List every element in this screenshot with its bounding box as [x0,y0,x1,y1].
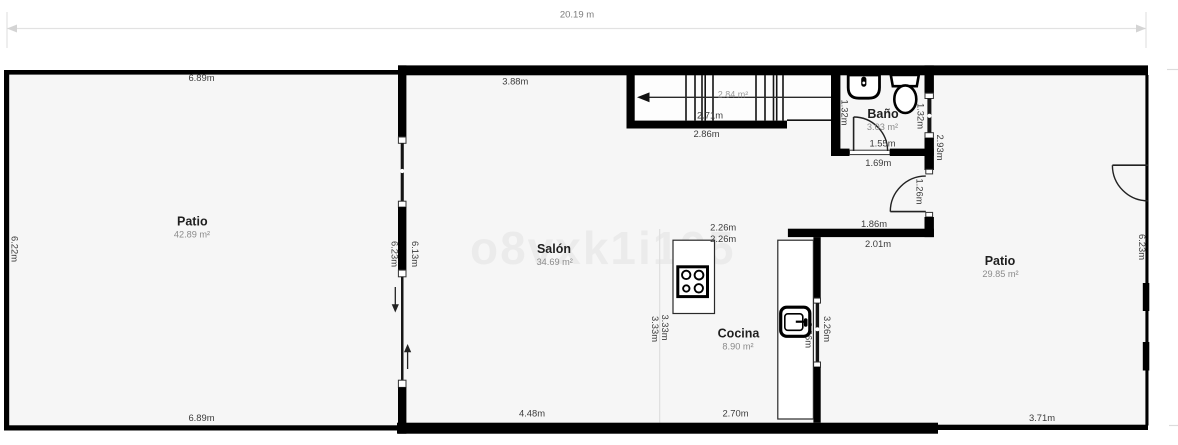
svg-text:6.89m: 6.89m [188,412,214,423]
svg-text:1.32m: 1.32m [840,99,851,125]
svg-text:1.26m: 1.26m [915,178,926,204]
svg-text:34.69 m²: 34.69 m² [537,257,573,267]
svg-text:Baño: Baño [867,107,899,121]
svg-text:2.26m: 2.26m [710,233,736,244]
svg-text:Salón: Salón [537,242,571,256]
svg-text:1.86m: 1.86m [861,218,887,229]
svg-text:1.32m: 1.32m [916,103,927,129]
svg-text:42.89 m²: 42.89 m² [174,230,210,240]
svg-text:3.71m: 3.71m [1029,412,1055,423]
svg-text:29.85 m²: 29.85 m² [982,269,1018,279]
svg-text:6.13m: 6.13m [410,241,421,267]
svg-text:Patio: Patio [177,215,208,229]
svg-text:2.01m: 2.01m [865,238,891,249]
svg-text:2.70m: 2.70m [722,408,748,419]
svg-text:6.22m: 6.22m [10,236,21,262]
svg-text:6.23m: 6.23m [1137,234,1148,260]
svg-text:1.69m: 1.69m [865,157,891,168]
svg-text:3.33m: 3.33m [650,316,661,342]
svg-text:2.71m: 2.71m [697,109,723,120]
svg-text:6.23m: 6.23m [390,241,401,267]
svg-text:4.48m: 4.48m [519,408,545,419]
svg-text:Patio: Patio [985,254,1016,268]
svg-text:3.03 m²: 3.03 m² [867,122,898,132]
svg-text:2.93m: 2.93m [935,134,946,160]
svg-text:2.86m: 2.86m [693,128,719,139]
svg-text:2.26m: 2.26m [710,222,736,233]
svg-text:8.90 m²: 8.90 m² [722,341,753,351]
svg-text:3.88m: 3.88m [502,75,528,86]
svg-text:20.19 m: 20.19 m [560,10,594,21]
svg-text:2.84 m²: 2.84 m² [718,90,749,100]
svg-text:3.26m: 3.26m [822,316,833,342]
svg-text:Cocina: Cocina [718,327,761,341]
svg-text:6.89m: 6.89m [188,72,214,83]
svg-text:1.55m: 1.55m [869,138,895,149]
